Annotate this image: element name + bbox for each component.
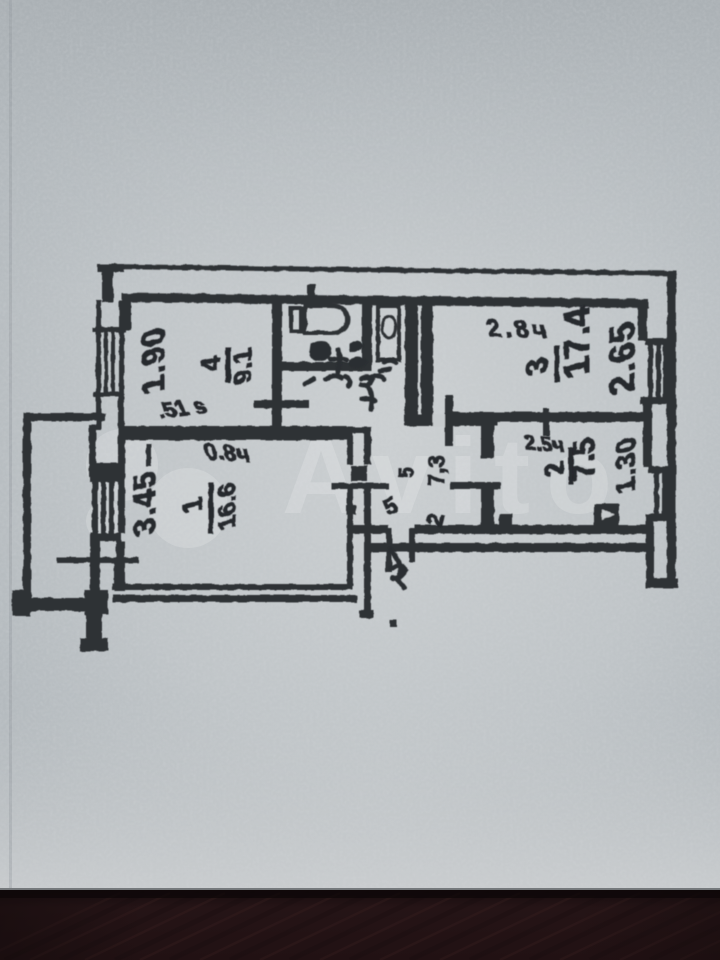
- svg-text:17.4: 17.4: [556, 302, 596, 382]
- svg-text:16.6: 16.6: [214, 480, 241, 533]
- svg-text:7,3: 7,3: [424, 455, 449, 486]
- svg-text:3.45: 3.45: [127, 467, 161, 540]
- svg-text:1.30: 1.30: [610, 433, 641, 497]
- svg-text:.51 s: .51 s: [152, 394, 211, 423]
- svg-text:2.8ч: 2.8ч: [483, 315, 553, 344]
- svg-text:2.65: 2.65: [602, 317, 641, 399]
- svg-text:5: 5: [396, 467, 418, 478]
- svg-text:7.5: 7.5: [567, 434, 601, 484]
- svg-text:9.1: 9.1: [229, 346, 257, 387]
- svg-text:2.5ч: 2.5ч: [522, 431, 566, 457]
- svg-text:0.8ч: 0.8ч: [201, 438, 252, 467]
- svg-text:1.90: 1.90: [135, 323, 170, 398]
